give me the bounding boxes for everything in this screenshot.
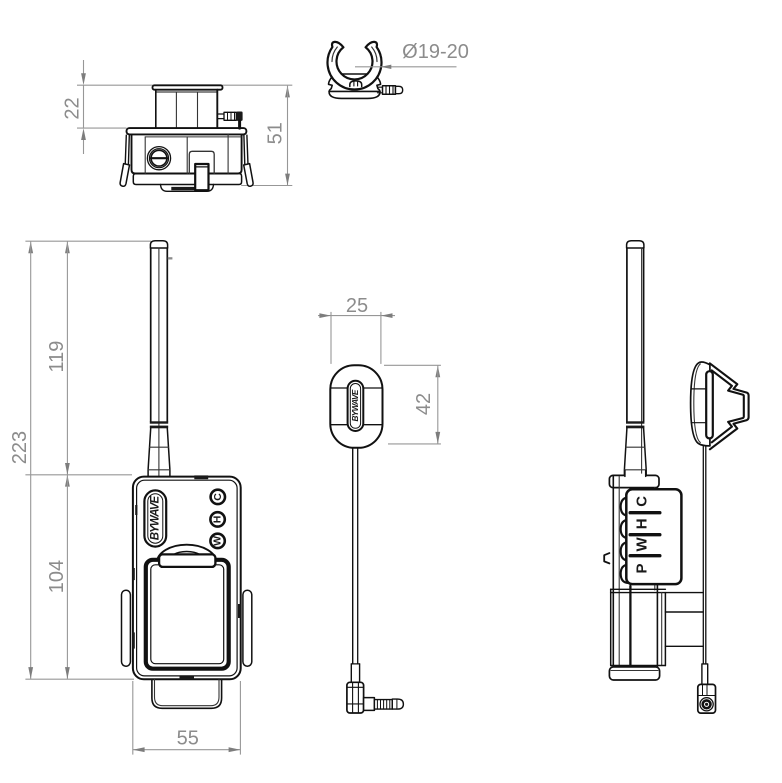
svg-text:25: 25 — [346, 295, 368, 317]
svg-text:W: W — [633, 536, 650, 551]
svg-text:104: 104 — [46, 560, 68, 593]
svg-text:C: C — [212, 493, 224, 501]
svg-text:BYWAVE: BYWAVE — [351, 389, 360, 421]
svg-text:119: 119 — [46, 341, 68, 373]
svg-text:BYWAVE: BYWAVE — [149, 495, 161, 540]
svg-text:H: H — [212, 516, 224, 524]
svg-text:22: 22 — [62, 97, 84, 119]
svg-text:P: P — [633, 563, 650, 573]
svg-text:51: 51 — [265, 122, 287, 144]
svg-text:C: C — [633, 496, 650, 507]
svg-text:W: W — [212, 536, 224, 546]
svg-text:Ø19-20: Ø19-20 — [402, 41, 469, 63]
svg-text:55: 55 — [177, 727, 199, 749]
svg-text:223: 223 — [9, 431, 31, 464]
svg-text:42: 42 — [413, 393, 435, 415]
svg-text:H: H — [633, 518, 650, 529]
